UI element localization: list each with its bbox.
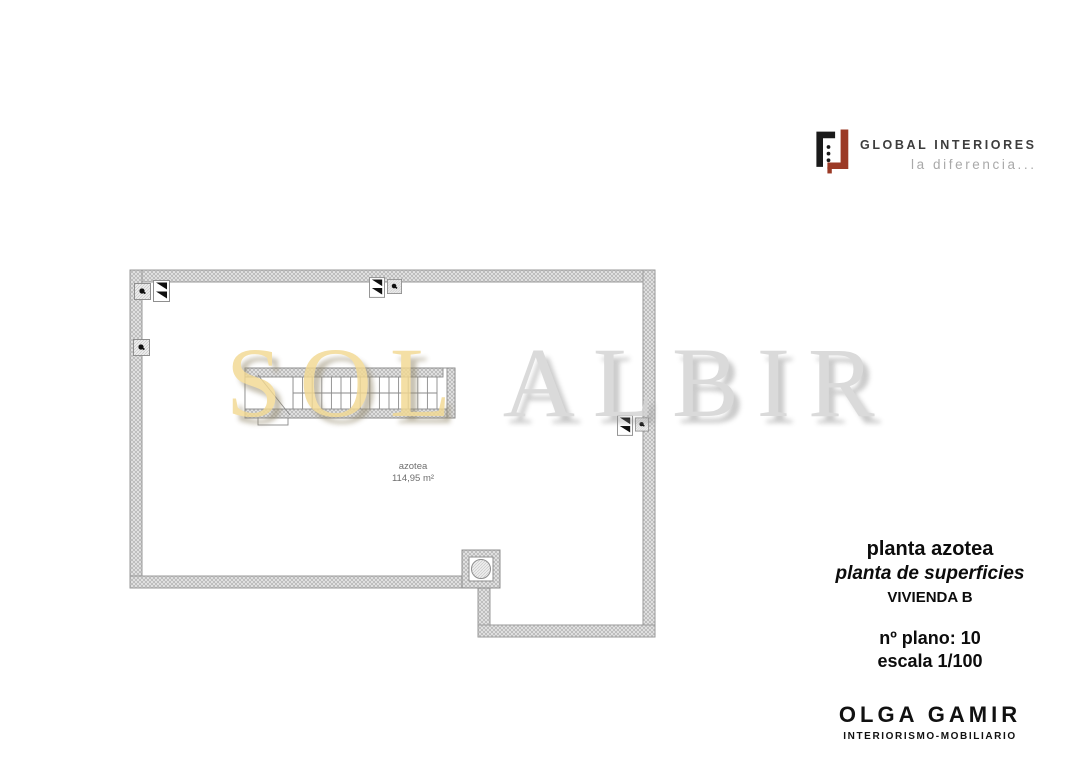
brand-name: GLOBAL INTERIORES: [860, 138, 1037, 152]
stair-wall-end: [447, 368, 455, 418]
stair-wall-top: [245, 368, 443, 377]
dwelling-label: VIVIENDA B: [788, 589, 1072, 606]
plan-scale: escala 1/100: [788, 651, 1072, 672]
slope-flag-icon: [617, 416, 632, 436]
roof-floor-plan: azotea 114,95 m²: [120, 260, 670, 650]
title-block: planta azotea planta de superficies VIVI…: [788, 538, 1072, 672]
chimney-vent-icon: [462, 550, 500, 588]
plan-title: planta azotea: [788, 538, 1072, 561]
plan-sheet: GLOBAL INTERIORES la diferencia... SOL A…: [0, 0, 1086, 768]
studio-signature: OLGA GAMIR INTERIORISMO-MOBILIARIO: [788, 702, 1072, 742]
roof-drain-icon: [134, 340, 150, 356]
slope-flag-icon: [154, 281, 170, 302]
global-interiores-logo: GLOBAL INTERIORES la diferencia...: [812, 127, 1037, 177]
plan-number: nº plano: 10: [788, 628, 1072, 649]
wall-left: [130, 270, 142, 588]
studio-subtitle: INTERIORISMO-MOBILIARIO: [788, 731, 1072, 742]
room-area-label: 114,95 m²: [392, 473, 434, 484]
stair-wall-bottom: [245, 409, 455, 418]
roof-drain-icon: [635, 418, 648, 431]
plan-subtitle: planta de superficies: [788, 563, 1072, 585]
room-label: azotea: [399, 461, 428, 472]
exterior-walls: [130, 270, 655, 637]
global-interiores-logo-icon: [812, 127, 856, 177]
staircase: [245, 368, 455, 425]
roof-drain-icon: [387, 279, 401, 293]
wall-right: [643, 270, 655, 637]
slope-flag-icon: [369, 278, 384, 298]
studio-name: OLGA GAMIR: [788, 702, 1072, 728]
wall-bottom-main: [130, 576, 466, 588]
wall-extension-bottom: [478, 625, 655, 637]
roof-drain-icon: [135, 284, 151, 300]
brand-tagline: la diferencia...: [860, 157, 1037, 172]
stair-step-foot: [258, 418, 288, 425]
stair-landing: [245, 377, 293, 409]
